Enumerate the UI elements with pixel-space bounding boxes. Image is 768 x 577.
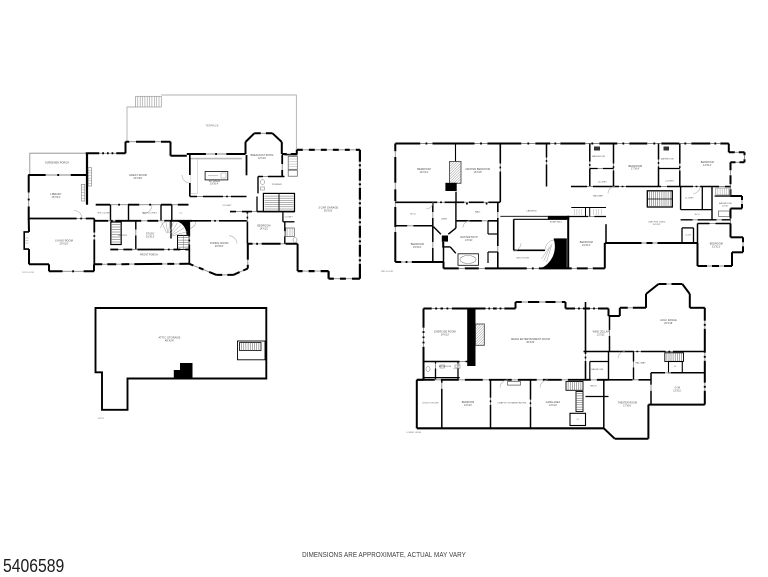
svg-text:GAME AREA14'X12': GAME AREA14'X12' — [546, 401, 561, 407]
svg-text:PANTRY: PANTRY — [118, 234, 128, 237]
svg-text:LOWER LEVEL: LOWER LEVEL — [406, 432, 422, 434]
svg-text:ATTIC STORAGE48'X24': ATTIC STORAGE48'X24' — [159, 335, 181, 342]
svg-text:STAIR HALL: STAIR HALL — [550, 221, 563, 224]
svg-text:MECH: MECH — [591, 386, 598, 388]
svg-text:LIVING ROOM20'X15': LIVING ROOM20'X15' — [55, 240, 73, 246]
svg-text:1ST FLOOR: 1ST FLOOR — [22, 272, 34, 274]
svg-text:TERRACE: TERRACE — [205, 124, 218, 128]
svg-text:CLOSET: CLOSET — [665, 180, 675, 182]
svg-text:UTILITY ROOM: UTILITY ROOM — [423, 403, 439, 405]
svg-text:GREAT ROOM24'X20': GREAT ROOM24'X20' — [129, 174, 147, 180]
svg-text:LIBRARY15'X14': LIBRARY15'X14' — [50, 193, 62, 199]
svg-text:BEDROOM16'X14': BEDROOM16'X14' — [580, 241, 593, 247]
svg-text:CL: CL — [674, 366, 677, 368]
svg-text:BEDROOM17'X14': BEDROOM17'X14' — [628, 165, 642, 171]
svg-text:CLOSET: CLOSET — [223, 205, 233, 207]
svg-text:POWDER: POWDER — [272, 184, 282, 186]
svg-text:CLOSET: CLOSET — [685, 197, 694, 199]
svg-text:LANDING: LANDING — [526, 210, 537, 213]
svg-text:CL: CL — [576, 419, 579, 421]
svg-text:3 CAR GARAGE30'X23': 3 CAR GARAGE30'X23' — [318, 207, 338, 213]
svg-text:HALLWAY: HALLWAY — [593, 195, 604, 198]
svg-text:HALLWAY: HALLWAY — [635, 362, 646, 365]
svg-text:HALL: HALL — [475, 211, 482, 214]
svg-text:MASTER BATH13'X11': MASTER BATH13'X11' — [460, 236, 478, 242]
svg-text:W.I.C.: W.I.C. — [695, 214, 701, 216]
svg-text:ATTIC: ATTIC — [98, 417, 105, 420]
svg-text:THEATER ROOM17'X16': THEATER ROOM17'X16' — [618, 402, 638, 408]
svg-text:LINEN: LINEN — [441, 218, 448, 220]
svg-text:MEDIA ENTERTAINMENT ROOM30'X20: MEDIA ENTERTAINMENT ROOM30'X20' — [511, 338, 550, 344]
svg-text:CRAFTS / HOMEWORK RM: CRAFTS / HOMEWORK RM — [498, 402, 527, 405]
svg-text:BEDROOM16'X14': BEDROOM16'X14' — [417, 168, 431, 174]
svg-text:DINING ROOM20'X15': DINING ROOM20'X15' — [210, 242, 228, 248]
svg-text:HIS CLOSET: HIS CLOSET — [97, 213, 112, 215]
svg-text:HER CLOSET: HER CLOSET — [142, 213, 158, 215]
svg-text:GOLF RANGE20'X18': GOLF RANGE20'X18' — [660, 319, 677, 325]
svg-text:STUDY16'X13': STUDY16'X13' — [146, 233, 155, 239]
svg-text:FRONT PORCH: FRONT PORCH — [140, 255, 158, 257]
svg-text:KITCHEN19'X14': KITCHEN19'X14' — [209, 180, 220, 186]
svg-text:BATHROOM: BATHROOM — [661, 158, 674, 161]
svg-text:BATHROOM: BATHROOM — [592, 155, 605, 158]
svg-text:BEDROOM14'X12': BEDROOM14'X12' — [462, 402, 475, 407]
svg-text:MASTER BEDROOM16'X15': MASTER BEDROOM16'X15' — [466, 168, 490, 174]
svg-text:BEDROOM14'X13': BEDROOM14'X13' — [701, 161, 714, 167]
svg-text:W.I.C.: W.I.C. — [410, 214, 417, 216]
svg-text:BATHROOM10'X6': BATHROOM10'X6' — [719, 202, 732, 207]
svg-text:BREAKFAST ROOM12'X10': BREAKFAST ROOM12'X10' — [251, 154, 274, 160]
svg-text:WINE CELLAR12'X11': WINE CELLAR12'X11' — [593, 331, 610, 337]
svg-text:BEDROOM15'X13': BEDROOM15'X13' — [710, 243, 723, 249]
svg-text:GYM13'X11': GYM13'X11' — [673, 388, 682, 393]
svg-text:2ND FLOOR: 2ND FLOOR — [516, 257, 529, 259]
svg-text:CL: CL — [180, 213, 184, 215]
svg-text:EXERCISE ROOM14'X13': EXERCISE ROOM14'X13' — [434, 331, 456, 337]
svg-text:BATHROOM: BATHROOM — [592, 368, 604, 371]
svg-text:SCREENED PORCH: SCREENED PORCH — [45, 162, 69, 165]
svg-text:CLOS: CLOS — [685, 234, 691, 236]
svg-text:BEDROOM14'X13': BEDROOM14'X13' — [257, 225, 270, 231]
svg-text:2ND FLR LNDG30'X11': 2ND FLR LNDG30'X11' — [648, 221, 665, 226]
svg-text:CLOSET: CLOSET — [598, 181, 608, 183]
svg-text:2ND FLOOR: 2ND FLOOR — [381, 271, 394, 273]
svg-text:CLOSET: CLOSET — [285, 217, 294, 219]
svg-text:BATHROOM: BATHROOM — [439, 365, 451, 368]
svg-text:BEDROOM15'X12': BEDROOM15'X12' — [411, 243, 424, 249]
